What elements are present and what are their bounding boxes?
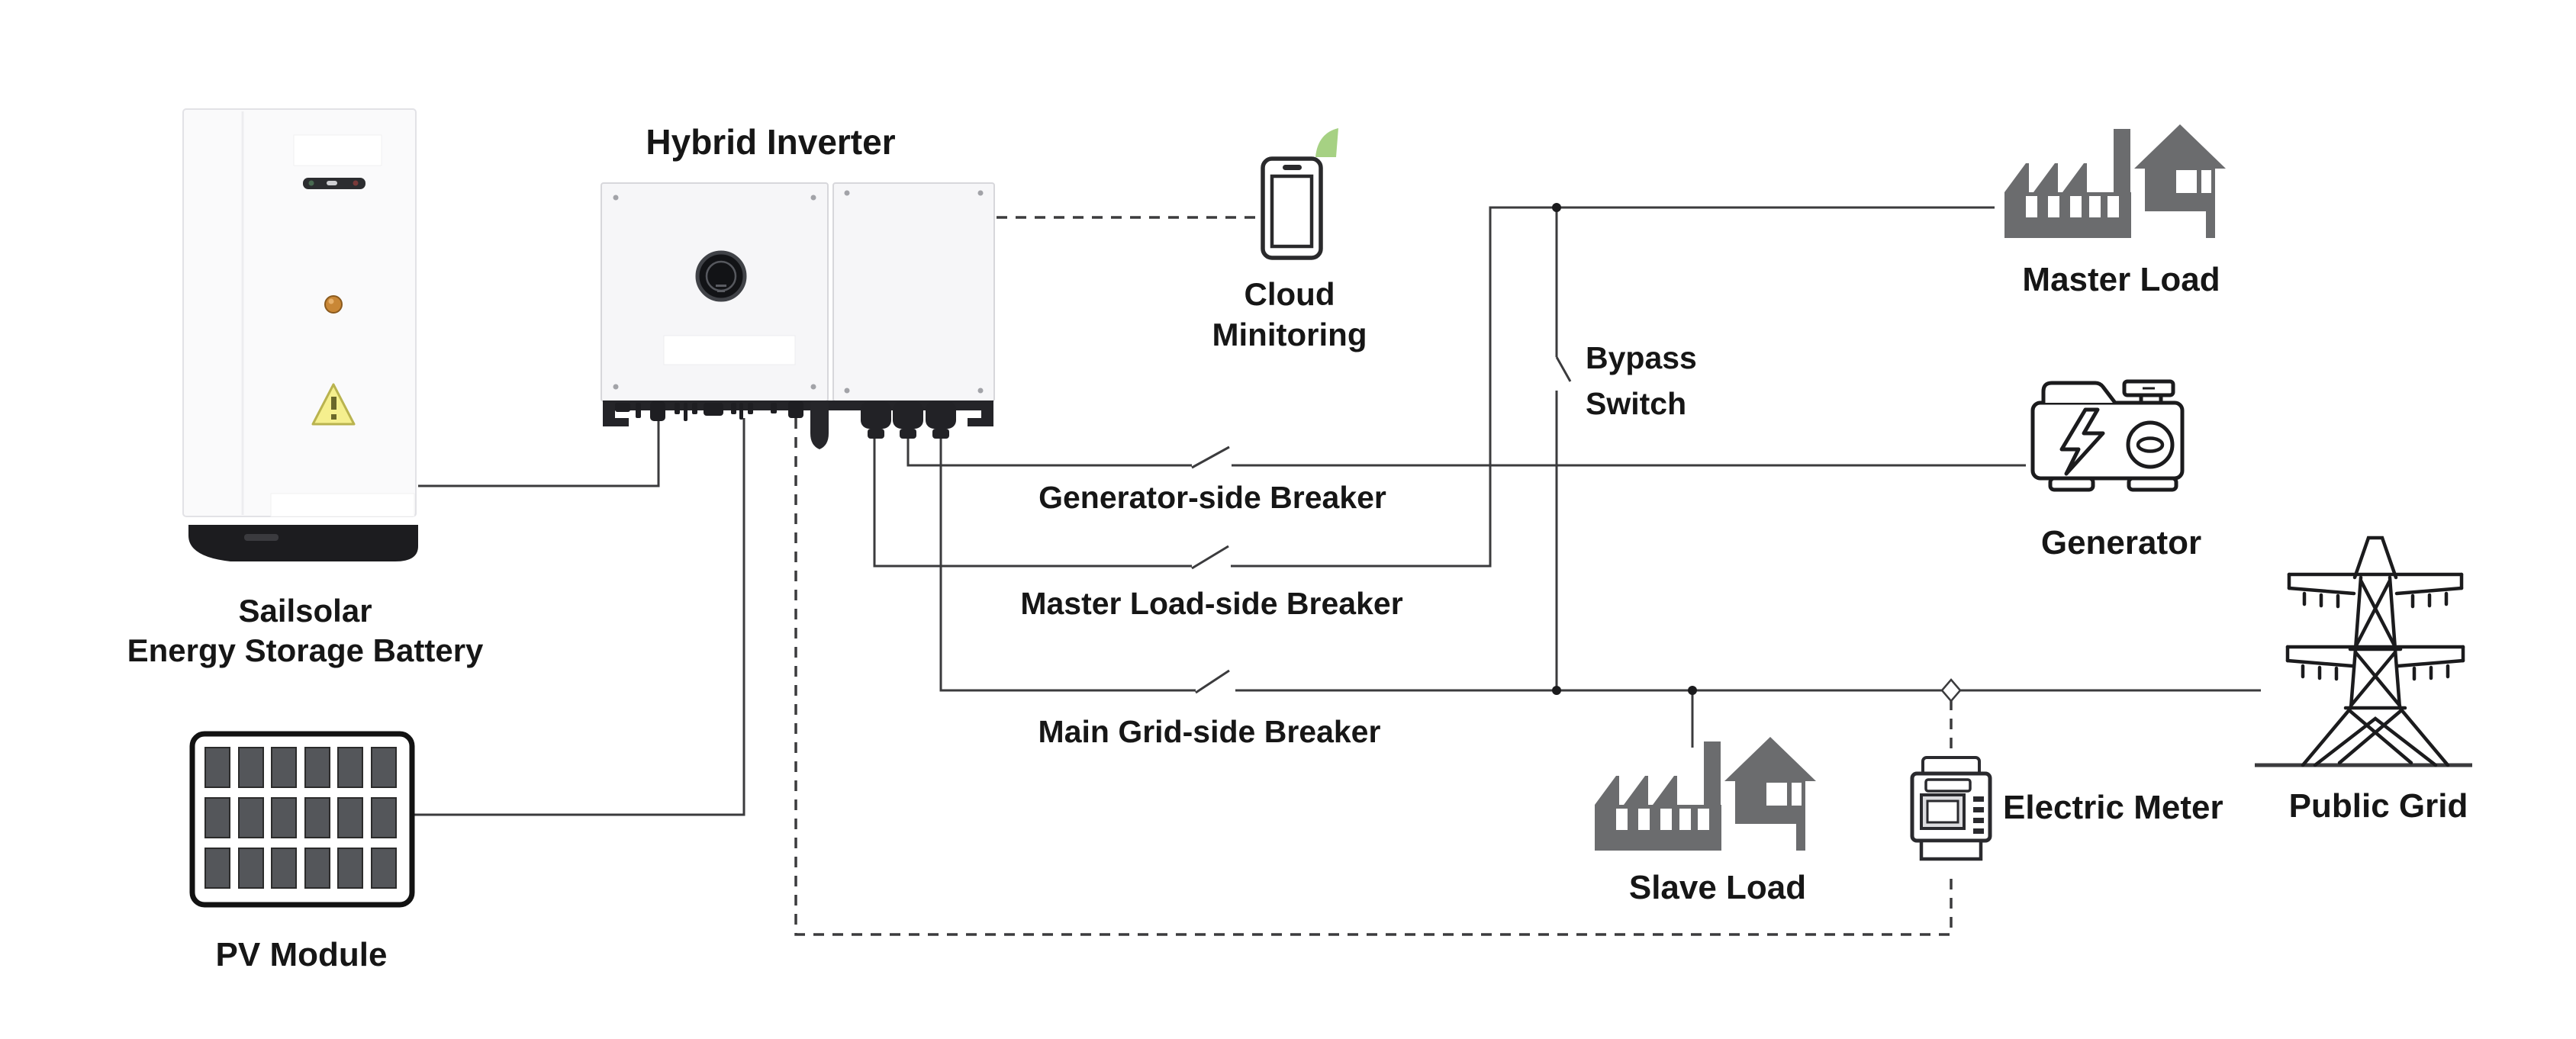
hybrid-inverter-icon bbox=[601, 183, 994, 449]
slave-load-label: Slave Load bbox=[1629, 867, 1806, 909]
master-load-breaker-blade bbox=[1192, 546, 1228, 568]
generator-wire bbox=[908, 435, 2026, 465]
pv-module-label: PV Module bbox=[216, 934, 388, 976]
electric-meter-icon bbox=[1912, 758, 1990, 859]
junction-dot bbox=[1552, 203, 1561, 212]
generator-side-breaker-label: Generator-side Breaker bbox=[1038, 478, 1386, 518]
master-load-label: Master Load bbox=[2022, 259, 2220, 301]
cloud-monitoring-label: Cloud Minitoring bbox=[1212, 275, 1367, 355]
pv-module-icon bbox=[192, 734, 412, 905]
main-grid-side-breaker-label: Main Grid-side Breaker bbox=[1038, 713, 1381, 752]
inverter-dial-display bbox=[697, 253, 745, 300]
hybrid-inverter-label: Hybrid Inverter bbox=[646, 121, 895, 165]
diamond-tap-marker bbox=[1942, 680, 1960, 701]
battery-indicator-dot bbox=[325, 296, 342, 313]
public-grid-tower-icon bbox=[2288, 538, 2463, 765]
battery-top-label bbox=[294, 135, 382, 166]
inverter-connector-rail bbox=[603, 400, 993, 449]
public-grid-label: Public Grid bbox=[2289, 785, 2468, 827]
junction-dot bbox=[1552, 686, 1561, 695]
signal-icon bbox=[1315, 128, 1338, 157]
diagram-graphics bbox=[0, 0, 2576, 1039]
generator-breaker-blade bbox=[1192, 447, 1229, 468]
generator-icon bbox=[2033, 381, 2182, 490]
bypass-switch-blade bbox=[1557, 357, 1570, 381]
inverter-label-strip bbox=[664, 336, 795, 365]
battery-label: Sailsolar Energy Storage Battery bbox=[127, 591, 484, 671]
bypass-switch-label: Bypass Switch bbox=[1586, 336, 1697, 427]
master-load-icon bbox=[2004, 124, 2226, 238]
ac-connectors bbox=[861, 401, 956, 439]
master-load-side-breaker-label: Master Load-side Breaker bbox=[1020, 584, 1402, 624]
battery-dc-wire bbox=[418, 420, 658, 486]
slave-load-icon bbox=[1595, 737, 1816, 851]
battery-bottom-label bbox=[271, 494, 414, 516]
battery-icon bbox=[183, 109, 418, 561]
battery-base bbox=[188, 525, 418, 561]
generator-label: Generator bbox=[2041, 522, 2201, 564]
antenna-connector bbox=[810, 401, 829, 449]
junction-dot bbox=[1688, 686, 1697, 695]
main-grid-breaker-blade bbox=[1196, 671, 1229, 693]
cloud-monitoring-phone-icon bbox=[1263, 128, 1338, 258]
diagram-canvas: Hybrid Inverter Cloud Minitoring Sailsol… bbox=[0, 0, 2576, 1039]
electric-meter-label: Electric Meter bbox=[2003, 786, 2223, 828]
